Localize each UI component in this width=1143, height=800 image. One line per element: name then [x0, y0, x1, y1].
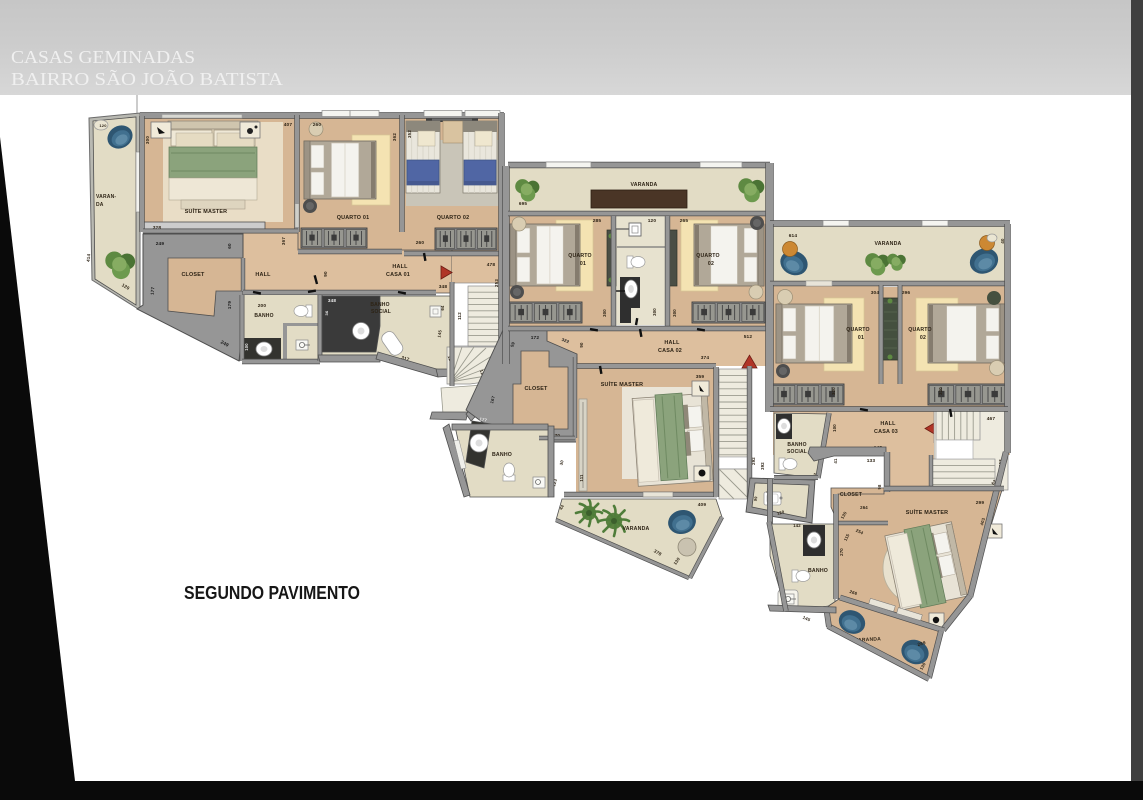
- svg-text:VARANDA: VARANDA: [631, 182, 658, 188]
- svg-text:CASA 02: CASA 02: [658, 348, 682, 354]
- svg-text:CLOSET: CLOSET: [524, 386, 548, 392]
- svg-text:177: 177: [150, 286, 156, 295]
- svg-text:BANHO: BANHO: [808, 568, 828, 574]
- svg-text:264: 264: [860, 505, 868, 510]
- svg-text:CASA 01: CASA 01: [386, 272, 410, 278]
- svg-text:300: 300: [145, 136, 150, 144]
- svg-text:320: 320: [938, 387, 943, 395]
- svg-text:VARANDA: VARANDA: [875, 241, 902, 247]
- svg-text:SOCIAL: SOCIAL: [371, 309, 391, 315]
- svg-text:120: 120: [648, 218, 657, 224]
- svg-text:352: 352: [407, 130, 412, 138]
- svg-text:512: 512: [744, 334, 753, 340]
- svg-text:299: 299: [976, 500, 985, 506]
- svg-text:265: 265: [680, 218, 689, 224]
- svg-text:392: 392: [760, 462, 765, 470]
- svg-text:414: 414: [86, 253, 92, 262]
- svg-text:HALL: HALL: [664, 340, 680, 346]
- svg-text:249: 249: [156, 241, 165, 247]
- svg-text:90: 90: [579, 342, 584, 348]
- svg-text:36: 36: [324, 310, 329, 315]
- svg-text:374: 374: [701, 355, 710, 361]
- svg-text:304: 304: [871, 290, 880, 296]
- svg-text:695: 695: [519, 201, 528, 206]
- svg-text:260: 260: [313, 122, 322, 128]
- svg-text:BANHO: BANHO: [492, 452, 512, 458]
- svg-text:BANHO: BANHO: [787, 442, 806, 448]
- svg-text:HALL: HALL: [392, 264, 408, 270]
- svg-text:01: 01: [580, 261, 586, 267]
- svg-text:120: 120: [99, 123, 107, 128]
- svg-text:112: 112: [457, 312, 462, 320]
- svg-text:98: 98: [877, 484, 882, 490]
- svg-text:253: 253: [494, 279, 499, 287]
- svg-text:348: 348: [328, 298, 337, 303]
- svg-text:320: 320: [831, 387, 836, 395]
- svg-text:40: 40: [1000, 238, 1005, 244]
- svg-text:QUARTO: QUARTO: [908, 327, 932, 333]
- svg-text:478: 478: [487, 262, 496, 268]
- svg-text:348: 348: [439, 284, 448, 290]
- svg-text:407: 407: [284, 122, 293, 128]
- svg-text:367: 367: [281, 237, 286, 245]
- svg-text:172: 172: [531, 335, 540, 341]
- svg-text:CLOSET: CLOSET: [181, 272, 205, 278]
- svg-text:02: 02: [708, 261, 714, 267]
- svg-text:614: 614: [789, 233, 798, 239]
- svg-text:300: 300: [652, 308, 657, 316]
- svg-text:CLOSET: CLOSET: [840, 492, 863, 498]
- svg-text:CASAS GEMINADAS: CASAS GEMINADAS: [11, 47, 195, 67]
- svg-text:200: 200: [258, 303, 267, 309]
- svg-text:285: 285: [593, 218, 602, 224]
- svg-text:300: 300: [672, 309, 677, 317]
- svg-text:60: 60: [227, 243, 232, 249]
- svg-text:362: 362: [392, 133, 397, 141]
- svg-text:SUÍTE MASTER: SUÍTE MASTER: [601, 380, 644, 388]
- svg-text:QUARTO 01: QUARTO 01: [337, 215, 370, 221]
- svg-text:SUÍTE MASTER: SUÍTE MASTER: [906, 508, 949, 516]
- svg-text:02: 02: [920, 335, 926, 341]
- svg-text:270: 270: [839, 548, 844, 556]
- svg-text:SOCIAL: SOCIAL: [787, 449, 807, 455]
- svg-text:359: 359: [696, 374, 705, 380]
- svg-text:100: 100: [244, 343, 249, 351]
- svg-text:BANHO: BANHO: [254, 313, 273, 319]
- svg-text:300: 300: [602, 309, 607, 317]
- svg-text:CASA 03: CASA 03: [874, 429, 898, 435]
- svg-text:41: 41: [833, 458, 838, 464]
- svg-text:VARAN-: VARAN-: [96, 194, 116, 200]
- svg-text:111: 111: [579, 474, 584, 482]
- svg-text:142: 142: [793, 523, 801, 528]
- svg-text:QUARTO: QUARTO: [568, 253, 592, 259]
- svg-text:VARANDA: VARANDA: [623, 526, 650, 532]
- svg-text:SUÍTE MASTER: SUÍTE MASTER: [185, 207, 228, 215]
- svg-text:179: 179: [227, 301, 232, 309]
- svg-text:01: 01: [858, 335, 864, 341]
- svg-text:HALL: HALL: [880, 421, 896, 427]
- svg-text:HALL: HALL: [255, 272, 271, 278]
- svg-text:SEGUNDO PAVIMENTO: SEGUNDO PAVIMENTO: [184, 583, 360, 603]
- svg-text:292: 292: [751, 457, 756, 465]
- svg-text:90: 90: [323, 271, 328, 277]
- svg-text:467: 467: [987, 416, 996, 422]
- svg-text:64: 64: [440, 305, 445, 311]
- svg-text:133: 133: [867, 458, 876, 464]
- svg-text:DA: DA: [96, 202, 104, 208]
- svg-text:260: 260: [416, 240, 425, 246]
- svg-text:QUARTO 02: QUARTO 02: [437, 215, 470, 221]
- svg-text:QUARTO: QUARTO: [846, 327, 870, 333]
- svg-text:BANHO: BANHO: [370, 302, 389, 308]
- svg-text:BAIRRO SÃO JOÃO BATISTA: BAIRRO SÃO JOÃO BATISTA: [11, 69, 283, 89]
- svg-text:100: 100: [832, 424, 837, 432]
- svg-text:409: 409: [698, 502, 707, 508]
- svg-text:QUARTO: QUARTO: [696, 253, 720, 259]
- svg-text:296: 296: [902, 290, 911, 296]
